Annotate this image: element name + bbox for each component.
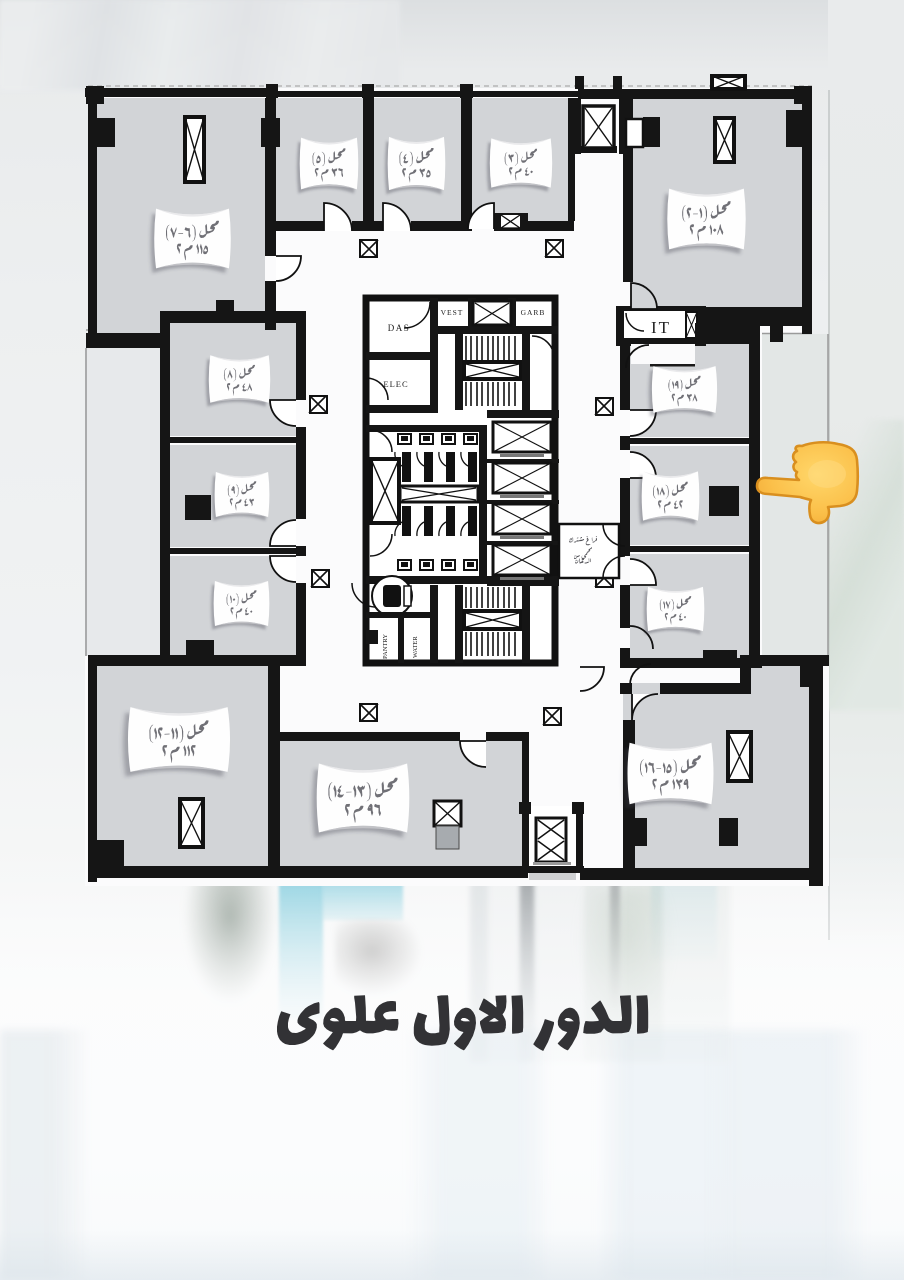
svg-text:VEST: VEST	[441, 308, 464, 317]
svg-text:IT: IT	[651, 318, 671, 337]
svg-text:ELEC: ELEC	[383, 379, 408, 389]
svg-text:PANTRY: PANTRY	[382, 634, 389, 659]
svg-text:GARB: GARB	[521, 308, 546, 317]
svg-text:WATER: WATER	[412, 636, 419, 658]
